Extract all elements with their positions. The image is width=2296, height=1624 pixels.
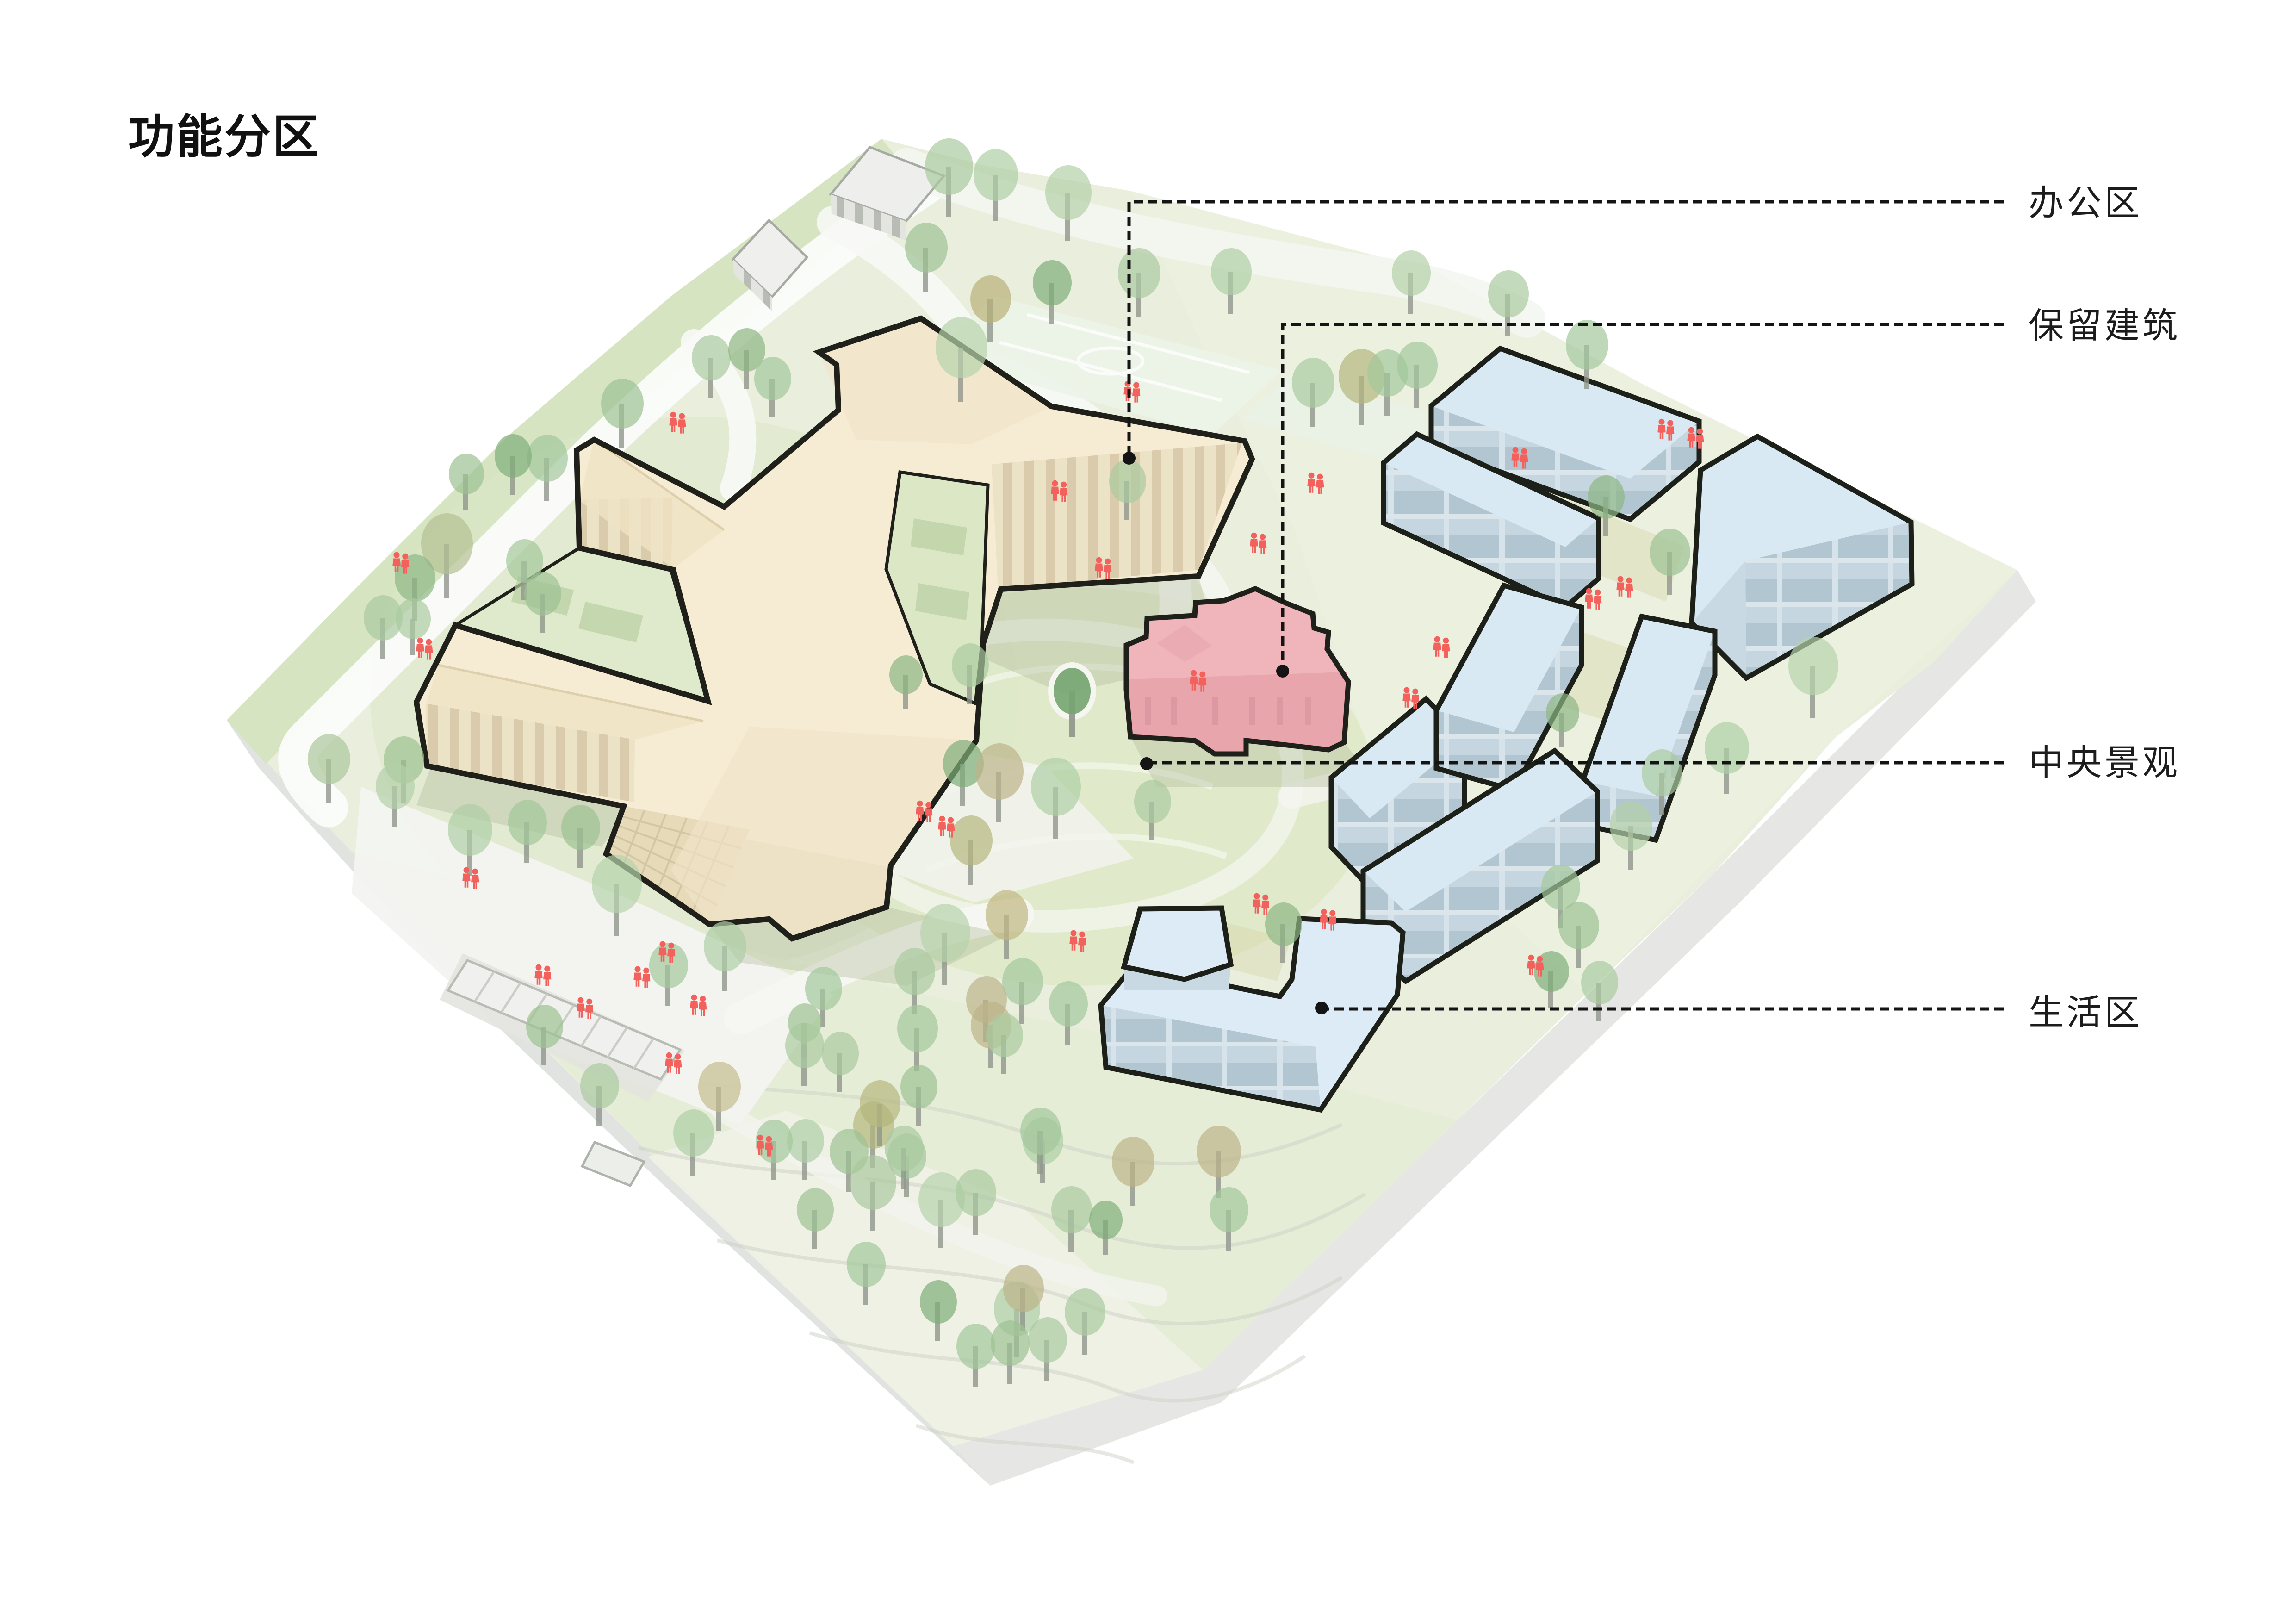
svg-text:功能分区: 功能分区 <box>128 111 321 163</box>
svg-text:保留建筑: 保留建筑 <box>2029 306 2180 346</box>
svg-text:生活区: 生活区 <box>2029 993 2142 1033</box>
svg-text:中央景观: 中央景观 <box>2029 743 2180 783</box>
svg-text:办公区: 办公区 <box>2029 184 2142 223</box>
